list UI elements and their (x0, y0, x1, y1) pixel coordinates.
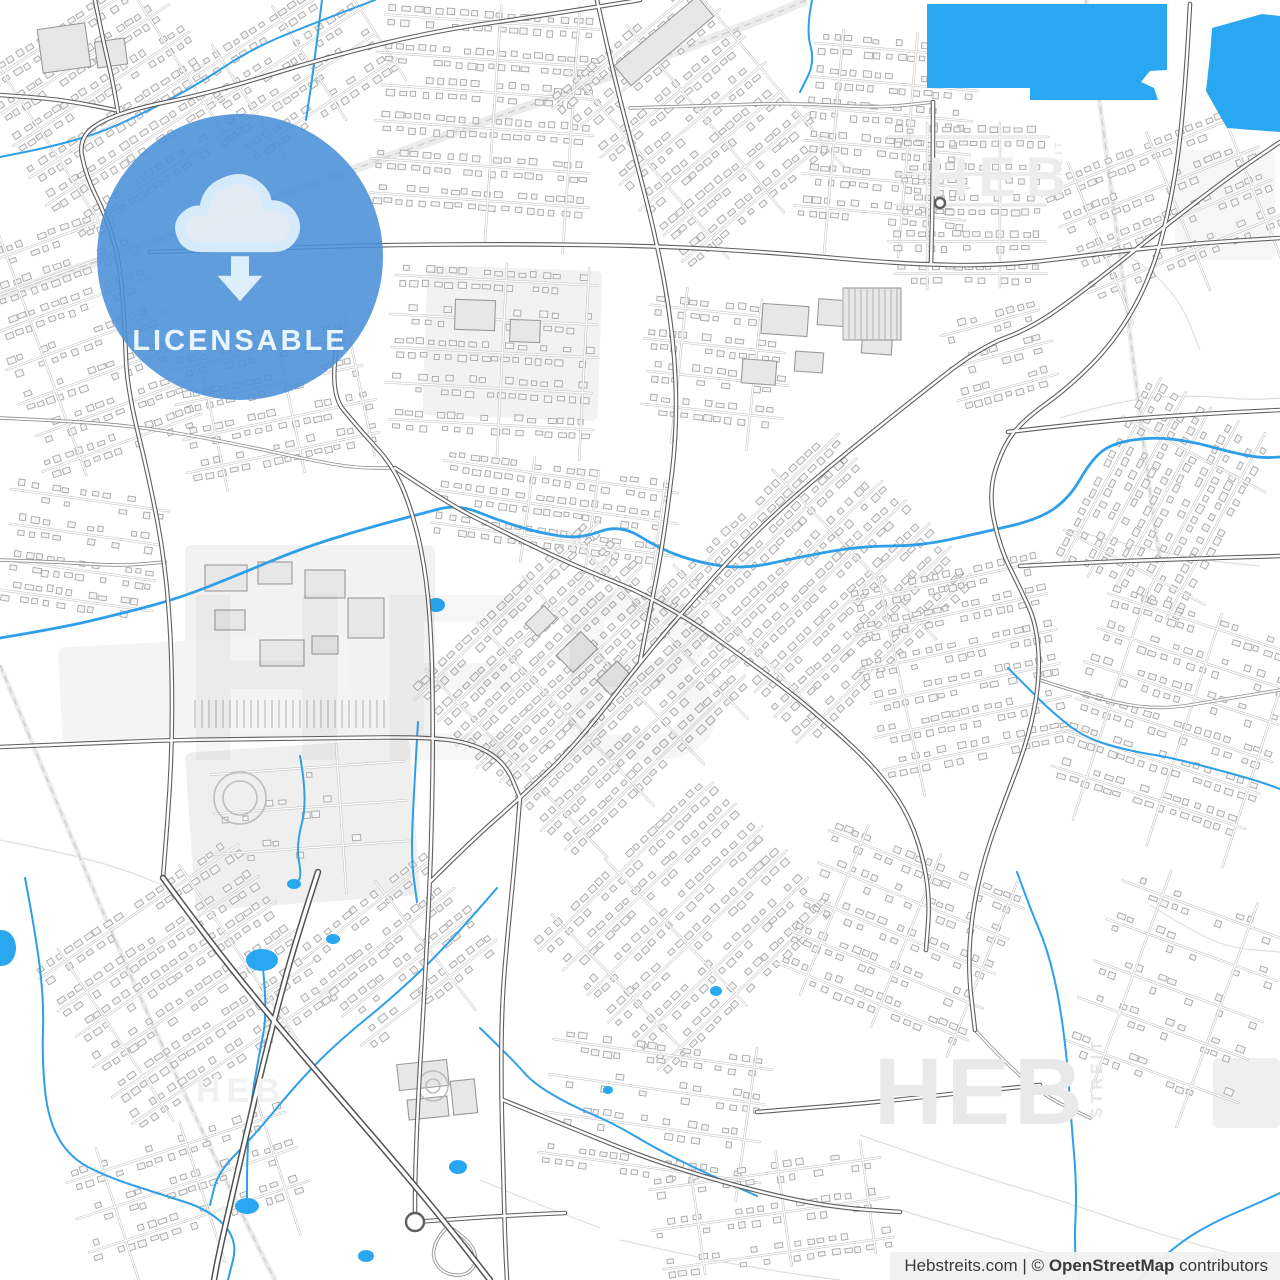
download-arrow-icon (218, 256, 263, 301)
attribution-osm: OpenStreetMap (1049, 1256, 1175, 1276)
attribution-site: Hebstreits.com | © (904, 1256, 1048, 1276)
licensable-badge: LICENSABLE (97, 114, 383, 400)
badge-label: LICENSABLE (132, 325, 347, 358)
cloud-download-icon (165, 157, 315, 315)
cloud-shape (180, 178, 295, 246)
watermark-text: HEB (180, 543, 747, 811)
watermark-text: STREIT (1053, 139, 1065, 196)
watermark-text: HEB (196, 1072, 286, 1110)
attribution-bar: Hebstreits.com | © OpenStreetMap contrib… (890, 1252, 1280, 1280)
map-screenshot: HEBSTREITHEBSTREITHEBHEB LICENSABLE Hebs… (0, 0, 1280, 1280)
attribution-suffix: contributors (1174, 1256, 1268, 1276)
watermark-text: HEB (874, 1039, 1087, 1145)
watermark-text: STREIT (1089, 1037, 1106, 1118)
